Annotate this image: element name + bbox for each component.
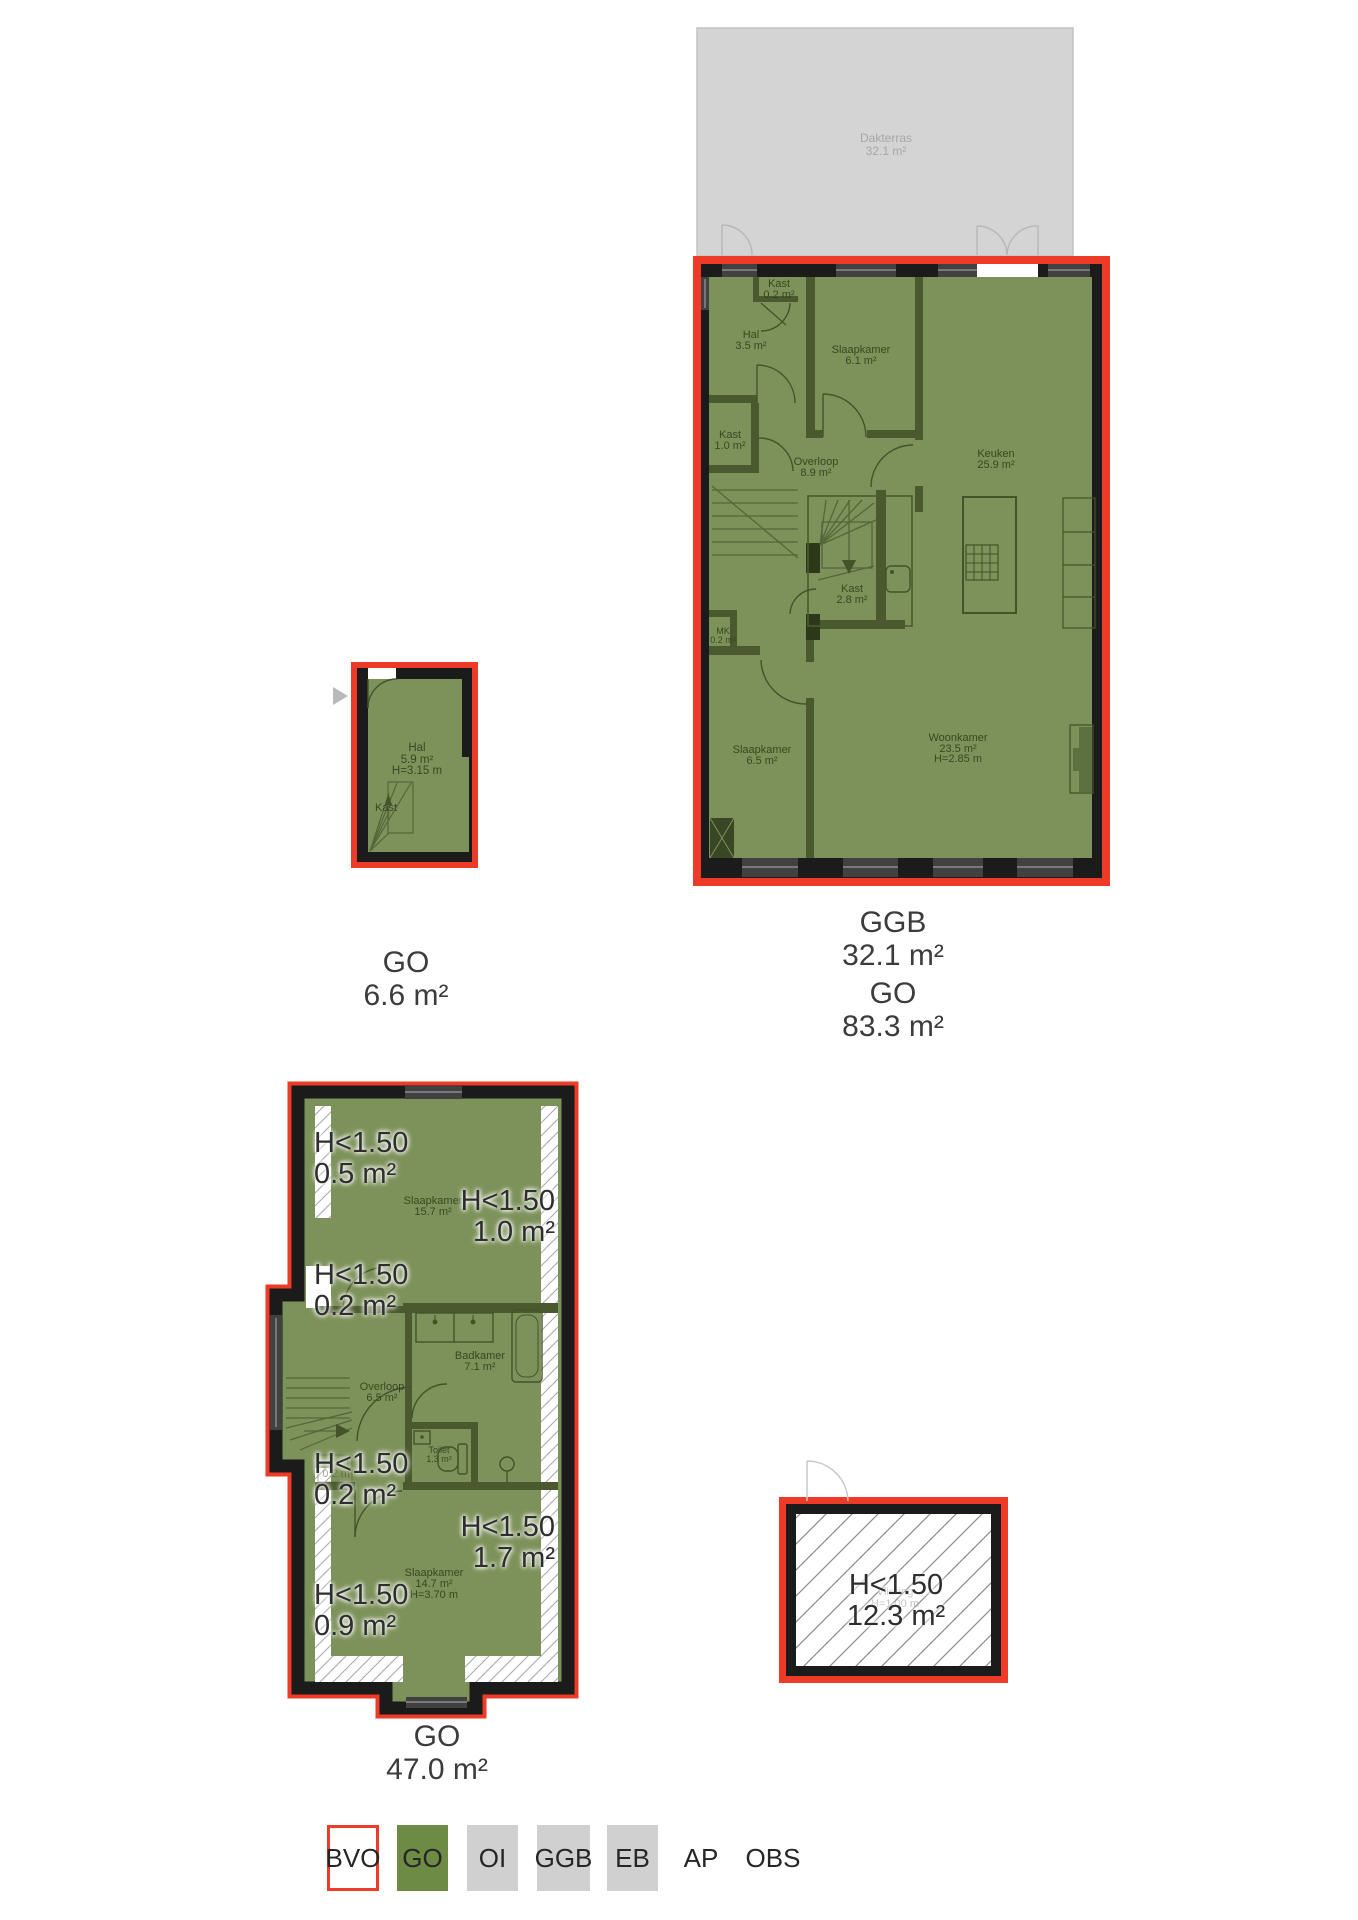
- room-label-kast-top: Kast0.2 m²: [763, 279, 794, 301]
- legend-item-eb: EB: [607, 1825, 658, 1891]
- legend-item-go: GO: [397, 1825, 448, 1891]
- legend-item-bvo: BVO: [327, 1825, 379, 1891]
- area-summary-go-entry: GO6.6 m²: [363, 946, 448, 1012]
- area-summary-go-upper: GO83.3 m²: [842, 977, 944, 1043]
- legend-item-oi: OI: [467, 1825, 518, 1891]
- room-label-kast-left: Kast1.0 m²: [714, 430, 745, 452]
- low-clearance-label-1: H<1.500.5 m²: [314, 1128, 408, 1190]
- legend-item-ap: AP: [675, 1825, 727, 1891]
- legend-item-obs: OBS: [745, 1825, 801, 1891]
- room-label-overloop-attic: Overloop6.5 m²: [360, 1382, 405, 1404]
- room-label-slaapkamer-1: Slaapkamer6.1 m²: [832, 345, 891, 367]
- legend-item-ggb: GGB: [537, 1825, 590, 1891]
- low-clearance-label-2: H<1.501.0 m²: [433, 1186, 555, 1248]
- floorplan-report-page: Dakterras 32.1 m² Kast0.2 m² Hal3.5 m² S…: [0, 0, 1358, 1920]
- room-label-woonkamer: Woonkamer23.5 m²H=2.85 m: [928, 733, 987, 765]
- area-summary-go-attic: GO47.0 m²: [386, 1720, 488, 1786]
- room-label-kast-entry: Kast: [375, 803, 397, 814]
- room-label-keuken: Keuken25.9 m²: [977, 449, 1014, 471]
- low-clearance-label-3: H<1.500.2 m²: [314, 1260, 408, 1322]
- room-label-overloop: Overloop8.9 m²: [794, 457, 839, 479]
- room-label-kast-mid: Kast2.8 m²: [836, 584, 867, 606]
- room-label-toilet: Toilet1.3 m²: [426, 1446, 452, 1464]
- room-label-badkamer: Badkamer7.1 m²: [455, 1351, 505, 1373]
- room-label-hal-entry: Hal5.9 m²H=3.15 m: [392, 743, 442, 778]
- low-clearance-label-6: H<1.500.9 m²: [314, 1580, 408, 1642]
- loft-door-arc: [807, 1461, 848, 1501]
- terrace-label: Dakterras 32.1 m²: [860, 132, 912, 158]
- low-clearance-label-5: H<1.501.7 m²: [433, 1512, 555, 1574]
- shower-block: [710, 818, 734, 858]
- loft-low-clearance-label: H<1.5012.3 m²: [847, 1570, 945, 1632]
- room-label-slaapkamer-2: Slaapkamer6.5 m²: [733, 745, 792, 767]
- area-summary-ggb: GGB32.1 m²: [842, 906, 944, 972]
- room-label-mk: MK0.2 m²: [710, 627, 736, 645]
- floorplan-drawing: [0, 0, 1358, 1920]
- room-label-hal: Hal3.5 m²: [735, 330, 766, 352]
- entry-door-opening: [368, 668, 396, 679]
- low-clearance-label-4: H<1.500.2 m²: [314, 1449, 408, 1511]
- terrace-door-opening: [977, 264, 1038, 277]
- cursor-triangle-icon: [333, 687, 348, 705]
